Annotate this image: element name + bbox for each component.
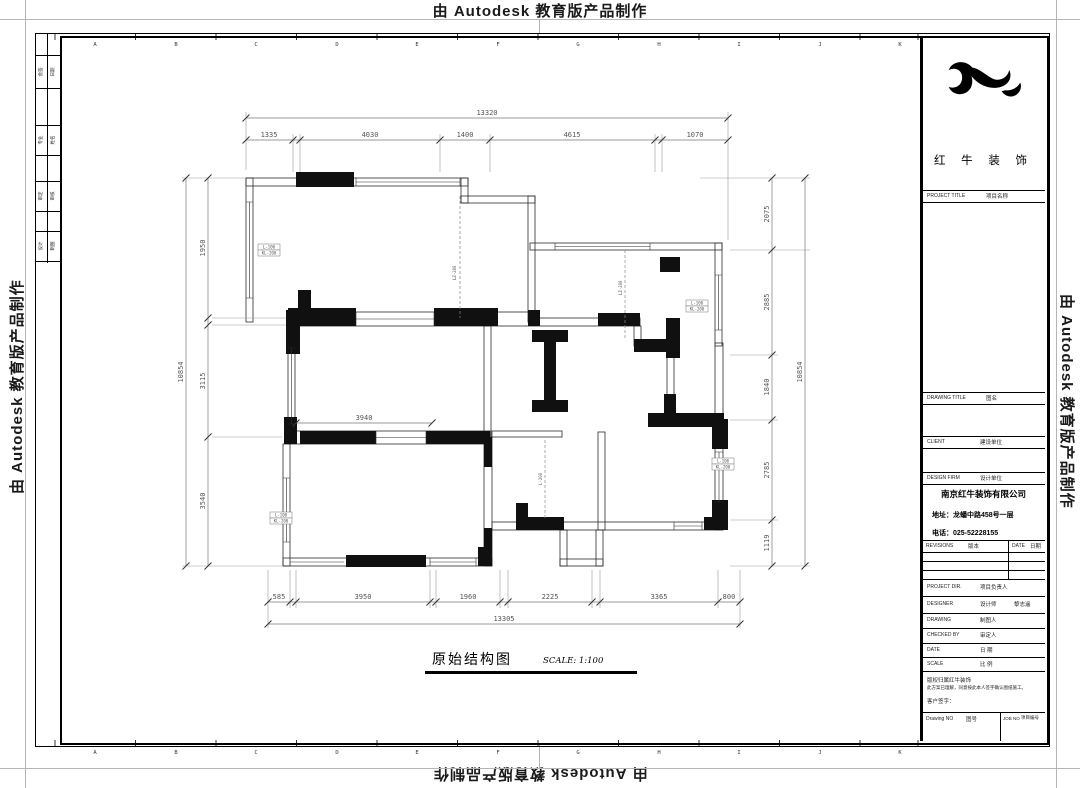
- dim-label: 1335: [261, 131, 278, 139]
- grid-letter: G: [576, 42, 579, 48]
- grid-letter: F: [496, 750, 499, 756]
- thin-walls: [246, 178, 723, 566]
- grid-letter: I: [737, 750, 740, 756]
- cad-sheet-page: 由 Autodesk 教育版产品制作 由 Autodesk 教育版产品制作 由 …: [0, 0, 1080, 788]
- dim-right-total: 10854: [796, 361, 804, 382]
- dim-label: 3115: [199, 373, 207, 390]
- dashed-line-labels: LZ-200 LZ-200 L-200: [452, 265, 623, 485]
- grid-letter: D: [335, 42, 338, 48]
- beam-label: L-100: [275, 513, 288, 518]
- dashed-label: L-200: [538, 472, 543, 485]
- dim-label: 1950: [199, 240, 207, 257]
- beam-label: KL-200: [690, 307, 705, 312]
- dimension-ticks: [183, 115, 809, 628]
- grid-letter: K: [898, 750, 902, 756]
- dim-interior: 3940: [356, 414, 373, 422]
- dim-label: 1960: [460, 593, 477, 601]
- dashed-lines: [460, 196, 625, 520]
- dim-label: 800: [723, 593, 736, 601]
- dim-label: 4615: [564, 131, 581, 139]
- grid-letter: D: [335, 750, 338, 756]
- beam-label: L-100: [263, 245, 276, 250]
- grid-letter: K: [898, 42, 902, 48]
- drawing-scale: SCALE: 1:100: [543, 656, 603, 666]
- grid-letter: H: [657, 750, 660, 756]
- dim-label: 4030: [362, 131, 379, 139]
- dim-left-total: 10854: [177, 361, 185, 382]
- dashed-label: LZ-200: [452, 265, 457, 280]
- grid-letter: A: [93, 750, 97, 756]
- dimension-lines: [186, 118, 805, 624]
- dashed-label: LZ-200: [618, 280, 623, 295]
- dim-label: 2885: [763, 294, 771, 311]
- grid-letter: E: [415, 750, 418, 756]
- beam-label: L-100: [717, 459, 730, 464]
- dim-label: 1400: [457, 131, 474, 139]
- dim-top-total: 13320: [476, 109, 497, 117]
- dim-label: 2785: [763, 462, 771, 479]
- dim-label: 2225: [542, 593, 559, 601]
- grid-letter: G: [576, 750, 579, 756]
- dim-label: 3950: [355, 593, 372, 601]
- grid-letters-bottom: A B C D E F G H I J K: [93, 750, 902, 756]
- dim-label: 3540: [199, 493, 207, 510]
- grid-letter: H: [657, 42, 660, 48]
- floor-plan: A B C D E F G H I J K A B C D E F G H I …: [0, 0, 1080, 788]
- beam-label: L-100: [691, 301, 704, 306]
- beam-label: KL-200: [716, 465, 731, 470]
- dim-label: 1070: [687, 131, 704, 139]
- dim-label: 2075: [763, 206, 771, 223]
- dim-label: 1119: [763, 535, 771, 552]
- grid-letter: C: [254, 750, 257, 756]
- drawing-title: 原始结构图: [432, 649, 512, 669]
- grid-letter: A: [93, 42, 97, 48]
- grid-letter: F: [496, 42, 499, 48]
- grid-letter: J: [818, 750, 821, 756]
- grid-letter: B: [174, 750, 178, 756]
- dim-label: 1840: [763, 379, 771, 396]
- grid-letter: C: [254, 42, 257, 48]
- dim-bottom-total: 13305: [493, 615, 514, 623]
- drawing-title-underline: [425, 671, 637, 674]
- beam-label: KL-200: [262, 251, 277, 256]
- grid-letter: E: [415, 42, 418, 48]
- grid-letter: J: [818, 42, 821, 48]
- beam-labels: L-100 KL-200 L-100 KL-200 L-100 KL-200 L…: [258, 244, 734, 524]
- grid-letter: I: [737, 42, 740, 48]
- dim-label: 3365: [651, 593, 668, 601]
- structural-walls: [284, 172, 728, 567]
- beam-label: KL-200: [274, 519, 289, 524]
- dim-label: 585: [273, 593, 286, 601]
- windows: [246, 178, 723, 566]
- dimension-extension-lines: [182, 112, 810, 628]
- grid-letters-top: A B C D E F G H I J K: [93, 42, 902, 48]
- grid-letter: B: [174, 42, 178, 48]
